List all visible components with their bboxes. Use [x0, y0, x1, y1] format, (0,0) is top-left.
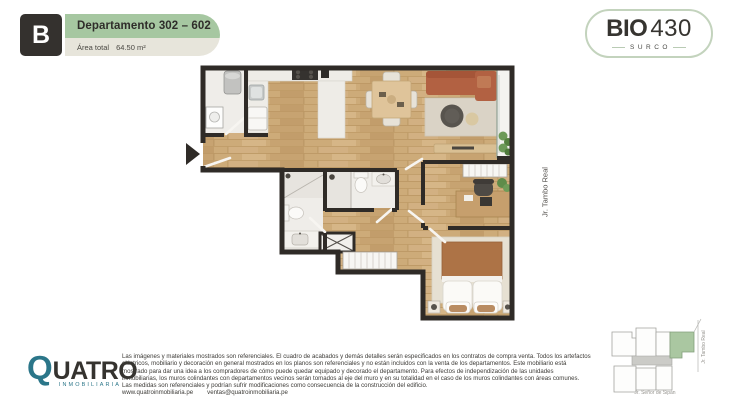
keyplan-unit-b-highlight: [670, 332, 694, 358]
apartment-header: Departamento 302 – 602 Área total 64.50 …: [65, 14, 220, 56]
disclaimer-line: eléctricos, mobiliario y decoración en g…: [122, 360, 622, 367]
logo-q: Q: [27, 351, 53, 384]
unit-letter: B: [32, 21, 50, 50]
email-link: ventas@quatroinmobiliaria.pe: [207, 389, 288, 396]
project-name-number: 430: [650, 17, 692, 41]
flyer-page: B Departamento 302 – 602 Área total 64.5…: [0, 0, 730, 410]
entry-arrow-icon: [186, 143, 200, 165]
bedroom: [428, 237, 514, 313]
disclaimer-line: Las medidas son referenciales y podrían …: [122, 382, 622, 389]
developer-logo: QUATRO INMOBILIARIA: [27, 351, 121, 388]
apartment-area: Área total 64.50 m²: [65, 38, 220, 56]
disclaimer-lines: Las imágenes y materiales mostrados son …: [122, 353, 622, 389]
bathroom-1: [284, 172, 323, 250]
project-name-bold: BIO: [606, 17, 647, 41]
disclaimer-line: mostrado para dar una idea a los comprad…: [122, 368, 622, 375]
area-label: Área total: [77, 43, 109, 52]
floor-plan: [180, 55, 540, 325]
keyplan-corridor: [632, 356, 672, 365]
district-rule-left: [612, 47, 625, 48]
bathroom-2: [327, 172, 395, 208]
legal-disclaimer: Las imágenes y materiales mostrados son …: [122, 353, 622, 397]
keyplan-street-bottom: Jr. Señor de Sipán: [634, 390, 675, 396]
contact-line: www.quatroinmobiliaria.pe ventas@quatroi…: [122, 389, 622, 396]
area-value: 64.50 m²: [116, 43, 146, 52]
project-logo: BIO 430 SURCO: [585, 9, 713, 58]
ottoman: [466, 113, 479, 126]
unit-letter-badge: B: [20, 14, 62, 56]
closet: [463, 164, 507, 177]
keyplan-street-right: Jr. Tambo Real: [701, 330, 707, 363]
disclaimer-line: inmobiliarias, los muros colindantes con…: [122, 375, 622, 382]
website-link: www.quatroinmobiliaria.pe: [122, 389, 193, 396]
project-district-row: SURCO: [612, 44, 687, 51]
project-name: BIO 430: [606, 17, 692, 41]
apartment-title: Departamento 302 – 602: [65, 14, 220, 38]
district-rule-right: [673, 47, 686, 48]
toilet: [289, 207, 304, 219]
toilet: [355, 178, 367, 193]
hall-wardrobe: [343, 252, 397, 269]
fridge: [248, 107, 267, 130]
bed-blanket: [442, 242, 502, 279]
stove: [292, 69, 318, 80]
disclaimer-line: Las imágenes y materiales mostrados son …: [122, 353, 622, 360]
street-label-right: Jr. Tambo Real: [541, 167, 550, 217]
project-district: SURCO: [630, 44, 671, 51]
